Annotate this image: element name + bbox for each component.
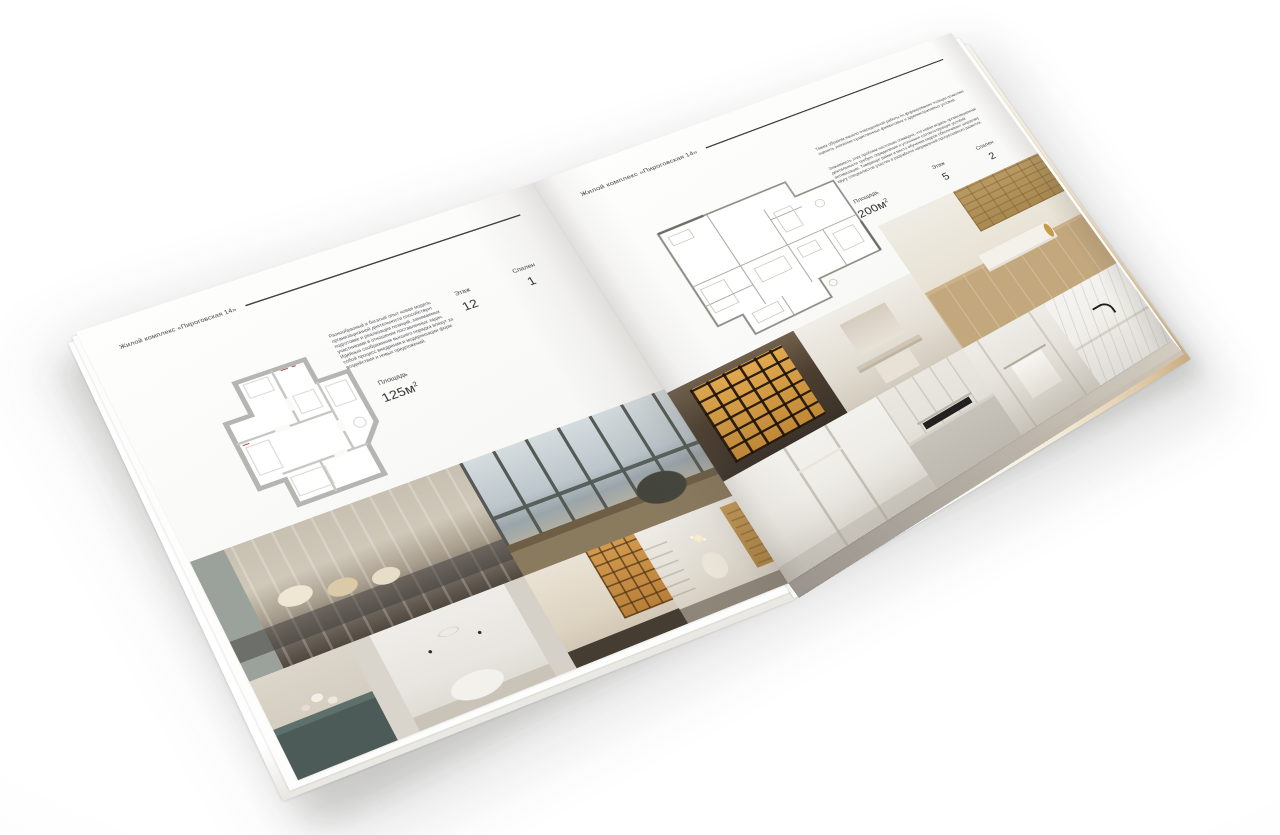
- spec-floor-right: Этаж 5: [922, 157, 963, 188]
- left-page-header: Жилой комплекс «Пироговская 14»: [118, 212, 522, 351]
- spec-bedrooms-right: Спален 2: [970, 137, 1009, 167]
- faucet-icon: [1092, 300, 1116, 321]
- mockup-scene: Жилой комплекс «Пироговская 14» Разноо: [0, 0, 1280, 835]
- spec-bedrooms-left: Спален 1: [505, 259, 553, 293]
- left-description: Разнообразный и богатый опыт новая модел…: [328, 296, 462, 371]
- left-page-title: Жилой комплекс «Пироговская 14»: [118, 306, 238, 351]
